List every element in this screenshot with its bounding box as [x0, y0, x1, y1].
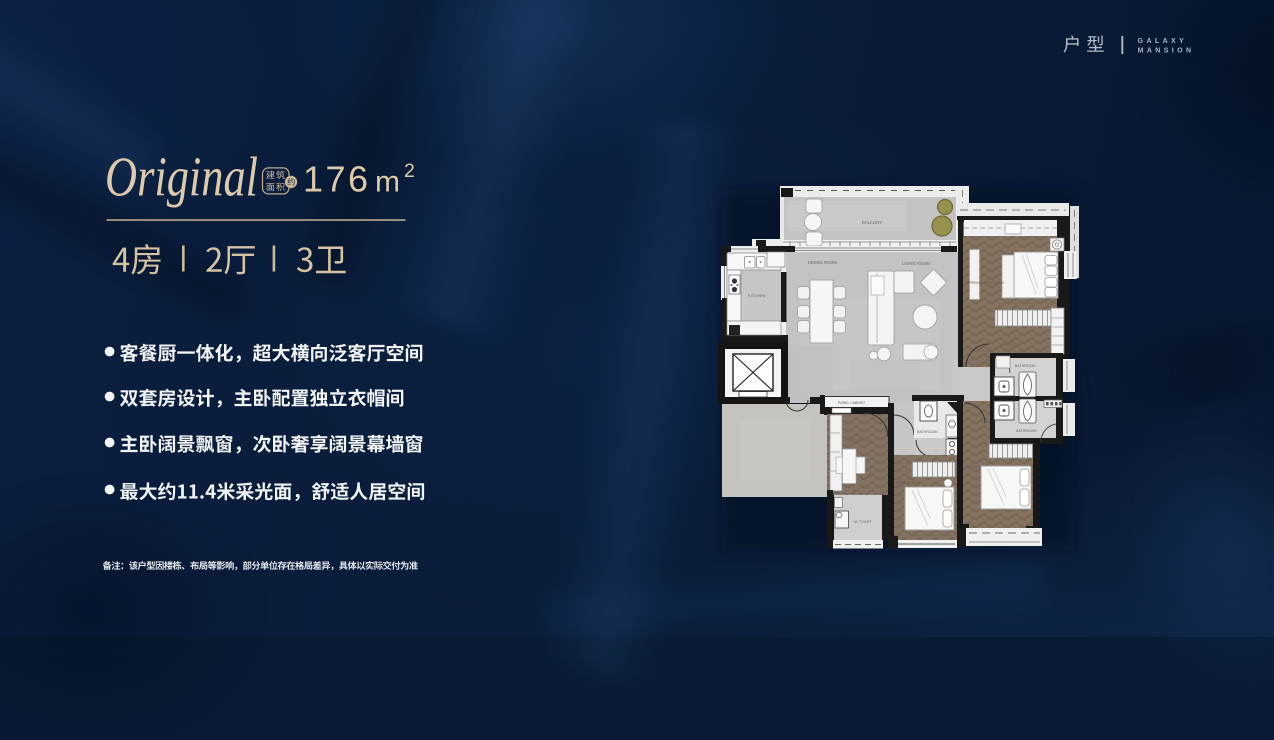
svg-text:BATHROOM: BATHROOM [1015, 364, 1036, 368]
svg-text:BATHROOM: BATHROOM [1016, 429, 1037, 433]
svg-text:BATHROOM: BATHROOM [917, 430, 938, 434]
svg-text:Original: Original [105, 147, 258, 209]
svg-text:M. TOILET: M. TOILET [854, 520, 872, 524]
svg-text:LIVING ROOM: LIVING ROOM [902, 261, 930, 266]
svg-text:KITCHEN: KITCHEN [748, 293, 766, 298]
svg-text:GREAT ROOM: GREAT ROOM [848, 439, 872, 443]
svg-text:m: m [375, 166, 400, 199]
svg-text:176: 176 [303, 159, 371, 200]
svg-text:DINING ROOM: DINING ROOM [808, 260, 837, 265]
svg-text:PREMIER B.ROOM: PREMIER B.ROOM [968, 280, 1004, 285]
svg-text:POWD. CABINET: POWD. CABINET [838, 401, 865, 405]
svg-text:2: 2 [404, 160, 415, 182]
svg-text:MANSION: MANSION [1138, 48, 1195, 55]
svg-text:WARD.ROBE: WARD.ROBE [1000, 343, 1023, 347]
svg-text:GALAXY: GALAXY [1138, 38, 1188, 45]
svg-text:BEDROOM: BEDROOM [896, 481, 916, 485]
svg-text:BALCONY: BALCONY [862, 220, 882, 225]
